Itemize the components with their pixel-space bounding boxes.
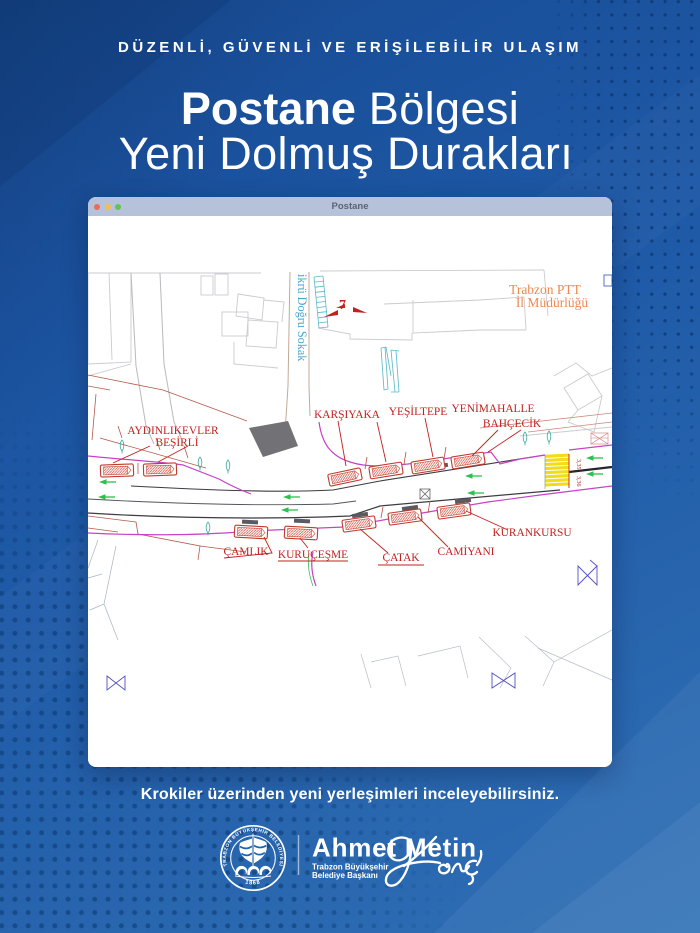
svg-text:ikrü Doğru Sokak: ikrü Doğru Sokak (295, 274, 309, 362)
svg-text:ÇATAK: ÇATAK (382, 552, 420, 564)
svg-text:KARŞIYAKA: KARŞIYAKA (314, 409, 381, 421)
svg-text:Ahmet Metin: Ahmet Metin (312, 833, 477, 863)
svg-text:CAMİYANI: CAMİYANI (438, 546, 495, 558)
svg-text:Belediye Başkanı: Belediye Başkanı (312, 871, 378, 880)
svg-text:KURANKURSU: KURANKURSU (492, 527, 571, 539)
svg-text:İl Müdürlüğü: İl Müdürlüğü (516, 295, 589, 310)
svg-text:3,35: 3,35 (575, 459, 581, 470)
svg-text:ÇAMLIK: ÇAMLIK (224, 546, 270, 558)
svg-text:KURUÇEŞME: KURUÇEŞME (278, 549, 348, 561)
svg-text:AYDINLIKEVLER: AYDINLIKEVLER (127, 425, 219, 437)
svg-text:BAHÇECİK: BAHÇECİK (483, 418, 542, 430)
svg-text:YENİMAHALLE: YENİMAHALLE (452, 403, 535, 415)
svg-text:YEŞİLTEPE: YEŞİLTEPE (389, 406, 447, 418)
svg-text:7: 7 (339, 298, 346, 313)
svg-text:BEŞİRLİ: BEŞİRLİ (155, 437, 198, 449)
svg-text:3,36: 3,36 (575, 476, 581, 487)
